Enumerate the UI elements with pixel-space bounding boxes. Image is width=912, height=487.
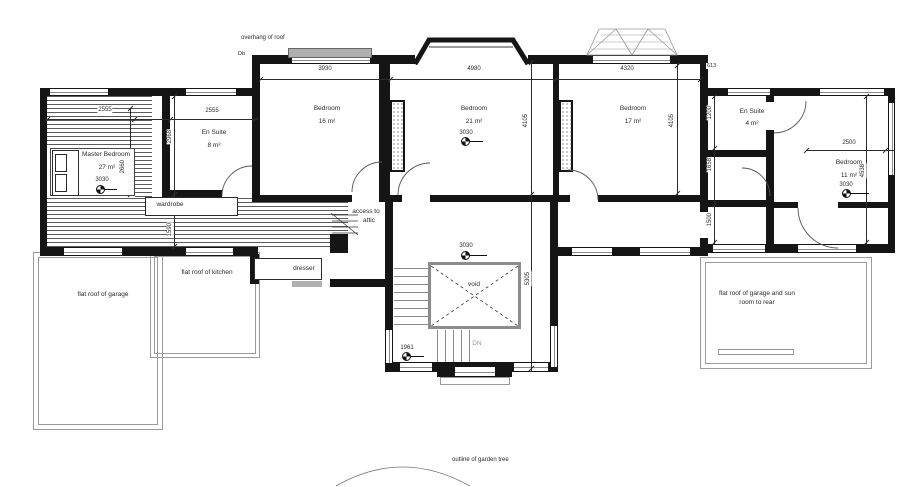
window — [798, 244, 856, 253]
first-floor-plan: 3930 4980 4320 2555 2555 2968 1590 2660 … — [0, 0, 912, 487]
window — [888, 103, 895, 175]
stair-tread — [394, 292, 428, 293]
stair-tread — [394, 316, 428, 317]
bay-window — [415, 40, 528, 64]
door-arc — [568, 170, 598, 200]
door-arc — [798, 208, 838, 248]
wall-segment — [330, 279, 387, 287]
dresser-counter — [292, 281, 322, 287]
level-marker-3030-label: 3030 — [838, 182, 853, 189]
room-label-bedroom21-area: 21 m² — [466, 118, 483, 126]
dim-master-strip: 2555 — [97, 107, 112, 114]
window — [186, 247, 233, 256]
dim-bedroom21-width: 4980 — [466, 66, 481, 73]
window — [385, 330, 393, 363]
wall-segment — [162, 96, 170, 197]
window — [713, 244, 765, 253]
wall-segment — [258, 195, 352, 202]
flat-roof-sunroom-label: flat roof of garage and sun — [719, 290, 795, 298]
down-label: DN — [472, 340, 481, 348]
dimension-line — [260, 79, 700, 80]
dim-corridor-depth: 1500 — [707, 212, 714, 227]
door-arc — [774, 101, 806, 133]
wall-segment — [774, 202, 798, 208]
dim-ensuite8-depth: 2968 — [167, 129, 174, 144]
void-area — [428, 262, 521, 329]
window — [64, 247, 122, 256]
hatched-floor-master-side — [135, 96, 152, 197]
fitted-panel — [559, 100, 573, 172]
window — [640, 247, 690, 256]
window — [820, 88, 884, 96]
access-to-attic-label: attic — [363, 217, 375, 225]
dim-eaves-offset: 613 — [706, 63, 717, 69]
wall-segment — [766, 130, 774, 246]
dresser-label: dresser — [293, 265, 315, 273]
wall-segment — [40, 88, 47, 255]
room-label-ensuite8-name: En Suite — [202, 129, 227, 137]
window — [400, 362, 432, 372]
wall-segment — [598, 195, 708, 202]
dim-stairwell-depth: 5305 — [525, 271, 532, 286]
overhang-of-roof-label: overhang of roof — [241, 35, 285, 42]
stair-tread — [437, 330, 438, 362]
wall-segment — [252, 55, 260, 202]
pillow — [55, 154, 67, 172]
stair-tread — [394, 308, 428, 309]
door-arc — [352, 162, 382, 192]
roof-outline-garage-inner — [38, 257, 158, 425]
room-label-master-name: Master Bedroom — [82, 151, 130, 159]
roof-light — [587, 29, 677, 55]
room-label-bedroom11-name: Bedroom — [836, 159, 862, 167]
wall-segment — [706, 150, 766, 157]
dim-bedroom11-width: 2500 — [841, 140, 856, 147]
db-label: Db — [238, 51, 245, 58]
window — [572, 247, 612, 256]
level-marker-3030-label: 3030 — [94, 177, 109, 184]
dim-bedroom21-depth: 4105 — [523, 113, 530, 128]
roof-outline-sunroom-sill — [718, 349, 794, 355]
window — [550, 326, 558, 367]
access-to-attic-label: access to — [352, 208, 379, 216]
dimension-line — [806, 150, 895, 151]
stair-tread — [445, 330, 446, 362]
hatched-floor-master-top — [47, 96, 135, 148]
dimension-line — [531, 60, 532, 372]
dim-ensuite8-width: 2555 — [204, 108, 219, 115]
dimension-line — [45, 119, 258, 120]
stair-tread — [394, 276, 428, 277]
dimension-line — [677, 63, 678, 195]
room-label-ensuite4-name: En Suite — [740, 108, 765, 116]
room-label-bedroom17-name: Bedroom — [620, 105, 646, 113]
room-label-master-area: 27 m² — [99, 164, 116, 172]
dim-landing-width: 1590 — [167, 222, 174, 237]
room-label-bedroom11-area: 11 m² — [841, 172, 857, 180]
flat-roof-sunroom-label: room to rear — [739, 299, 774, 307]
pillow — [55, 174, 67, 192]
door-arc — [222, 166, 252, 196]
dimension-line — [714, 96, 715, 245]
level-marker-3030-label: 3030 — [458, 243, 473, 250]
flat-roof-garage-label: flat roof of garage — [78, 291, 129, 299]
window — [593, 55, 670, 64]
stair-tread — [394, 324, 428, 325]
garden-tree-label: outline of garden tree — [452, 457, 509, 464]
wall-segment — [430, 195, 570, 202]
wall-segment — [766, 96, 774, 102]
dim-bedroom16-width: 3930 — [317, 66, 332, 73]
window — [455, 366, 495, 377]
stair-tread — [394, 284, 428, 285]
level-marker-1961-label: 1961 — [399, 345, 414, 352]
wall-segment — [495, 366, 512, 377]
stair-tread — [461, 330, 462, 362]
wall-segment — [330, 234, 348, 253]
stair-tread — [469, 330, 470, 362]
window — [186, 88, 236, 96]
window — [728, 88, 770, 96]
stair-bay-sill — [440, 377, 510, 385]
dim-ensuite4-depth: 1200 — [707, 105, 714, 120]
stair-tread — [394, 268, 428, 269]
stair-tread — [394, 300, 428, 301]
flat-roof-kitchen-label: flat roof of kitchen — [181, 269, 232, 277]
wall-segment — [437, 366, 455, 377]
room-label-bedroom17-area: 17 m² — [625, 118, 642, 126]
fitted-panel — [390, 100, 405, 172]
garden-tree-arc — [336, 467, 470, 486]
room-label-bedroom16-area: 16 m² — [319, 118, 336, 126]
dim-dressing-depth: 1658 — [707, 157, 714, 172]
level-marker-3030-label: 3030 — [458, 130, 473, 137]
dim-bedroom17-width: 4320 — [619, 66, 634, 73]
room-label-ensuite8-area: 8 m² — [208, 142, 221, 150]
room-label-bedroom16-name: Bedroom — [314, 105, 340, 113]
stair-tread — [453, 330, 454, 362]
wardrobe-label: wardrobe — [156, 201, 183, 209]
window — [50, 88, 108, 96]
room-label-ensuite4-area: 4 m² — [746, 120, 759, 128]
void-label: void — [466, 281, 482, 289]
room-label-bedroom21-name: Bedroom — [461, 105, 487, 113]
dim-bedroom17-depth: 4105 — [669, 113, 676, 128]
roof-overhang-band — [288, 48, 372, 58]
dim-master-bed-depth: 2660 — [120, 159, 127, 174]
